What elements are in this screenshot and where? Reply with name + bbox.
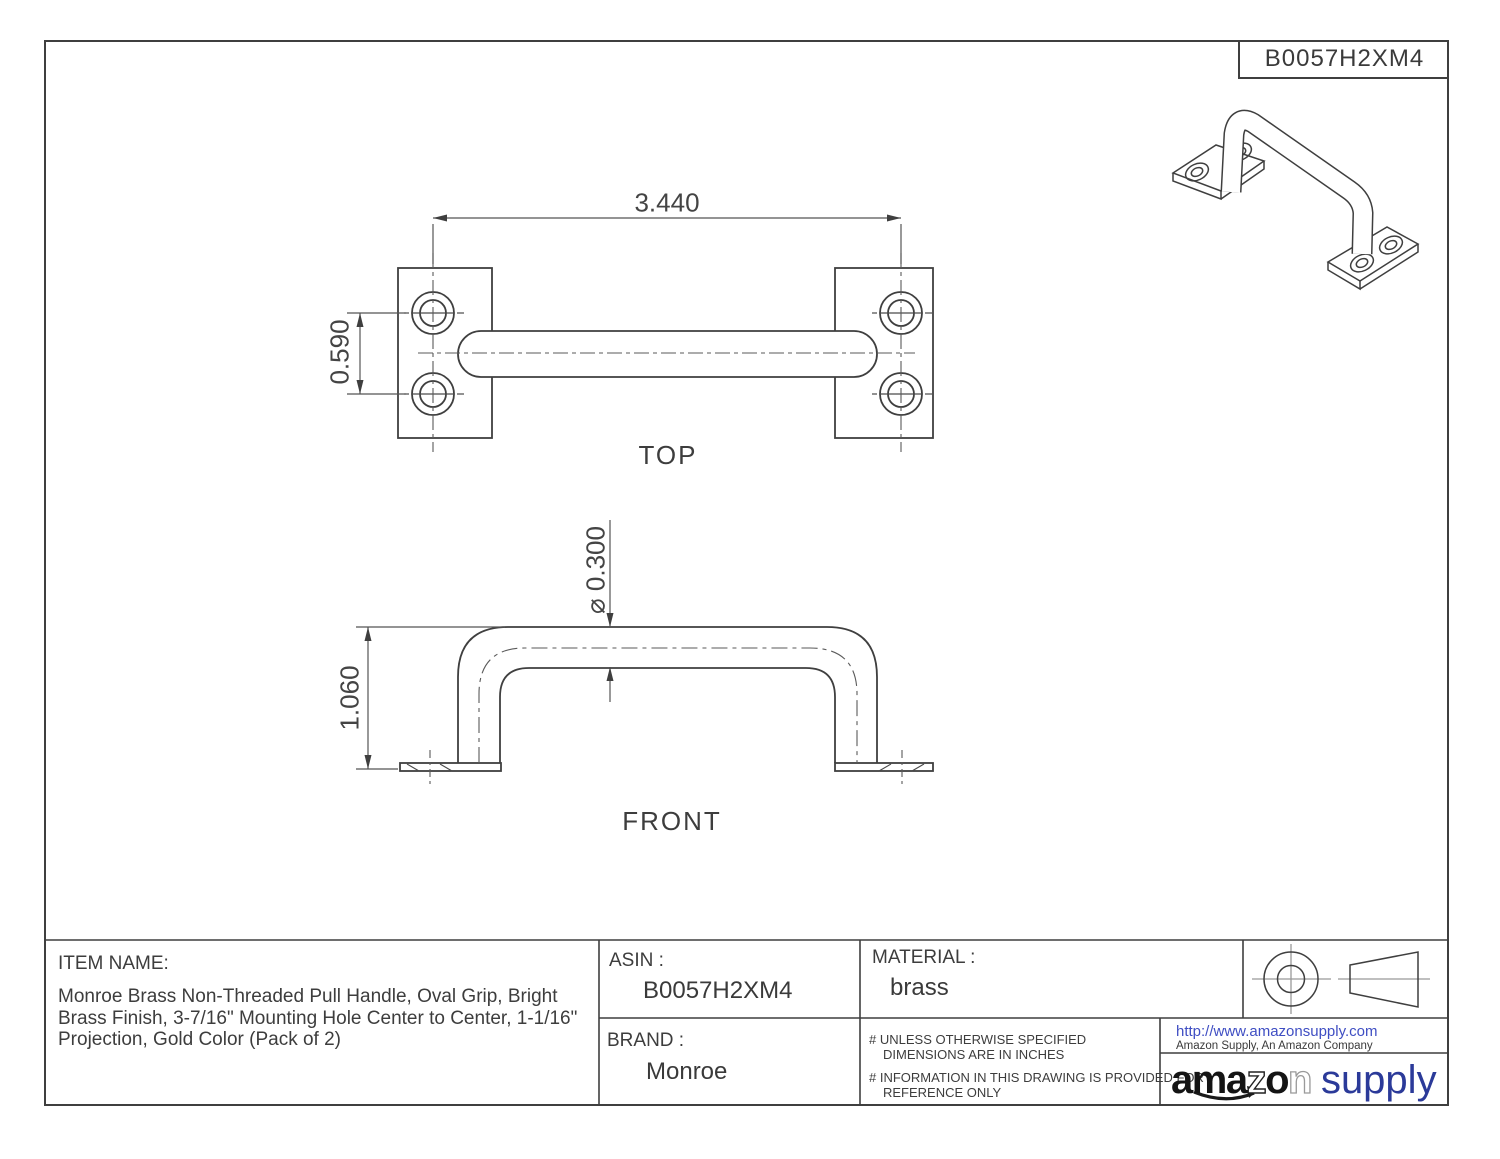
item-name-label: ITEM NAME: [58, 953, 169, 975]
top-hole-spacing-dimension: 0.590 [325, 319, 356, 384]
drawing-number: B0057H2XM4 [1265, 45, 1424, 73]
top-span-dimension: 3.440 [634, 188, 699, 219]
note-reference: # INFORMATION IN THIS DRAWING IS PROVIDE… [869, 1070, 1204, 1100]
drawing-number-box: B0057H2XM4 [1238, 40, 1449, 79]
logo-ama: ama [1171, 1058, 1247, 1102]
top-view-label: TOP [639, 440, 698, 471]
logo-supply: supply [1321, 1058, 1437, 1102]
front-diameter-dimension: ⌀ 0.300 [581, 526, 612, 614]
supplier-company-line: Amazon Supply, An Amazon Company [1176, 1040, 1373, 1052]
brand-label: BRAND : [607, 1030, 684, 1052]
note-units: # UNLESS OTHERWISE SPECIFIED DIMENSIONS … [869, 1032, 1086, 1062]
front-view-label: FRONT [622, 806, 722, 837]
logo-z: z [1247, 1058, 1266, 1102]
amazon-supply-logo: amazonsupply [1171, 1058, 1437, 1102]
brand-value: Monroe [646, 1058, 727, 1086]
logo-n: n [1288, 1058, 1311, 1102]
material-label: MATERIAL : [872, 947, 975, 969]
material-value: brass [890, 974, 949, 1002]
sheet-border [44, 40, 1449, 1106]
drawing-sheet: B0057H2XM4 [0, 0, 1500, 1159]
logo-o: o [1265, 1058, 1288, 1102]
asin-label: ASIN : [609, 950, 664, 972]
item-name-value: Monroe Brass Non-Threaded Pull Handle, O… [58, 986, 578, 1051]
supplier-url: http://www.amazonsupply.com [1176, 1023, 1377, 1040]
asin-value: B0057H2XM4 [643, 977, 792, 1005]
front-height-dimension: 1.060 [335, 665, 366, 730]
